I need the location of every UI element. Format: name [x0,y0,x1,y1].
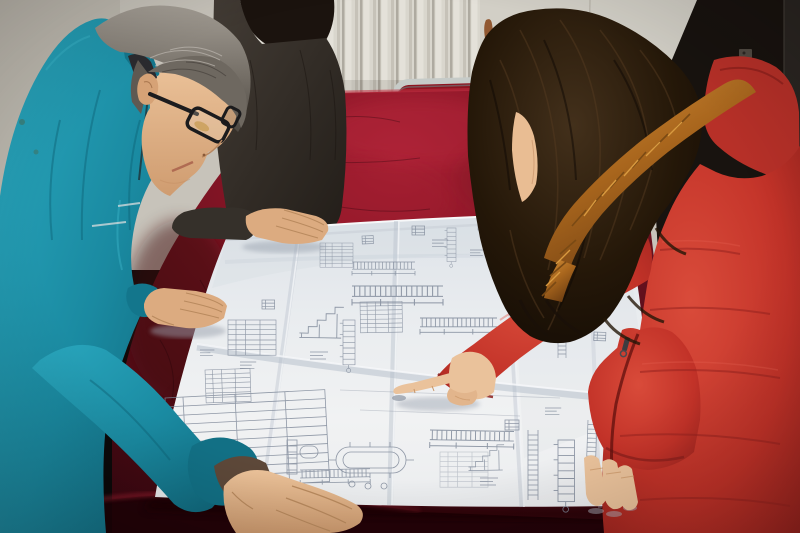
vignette [0,0,800,533]
photo-scene [0,0,800,533]
